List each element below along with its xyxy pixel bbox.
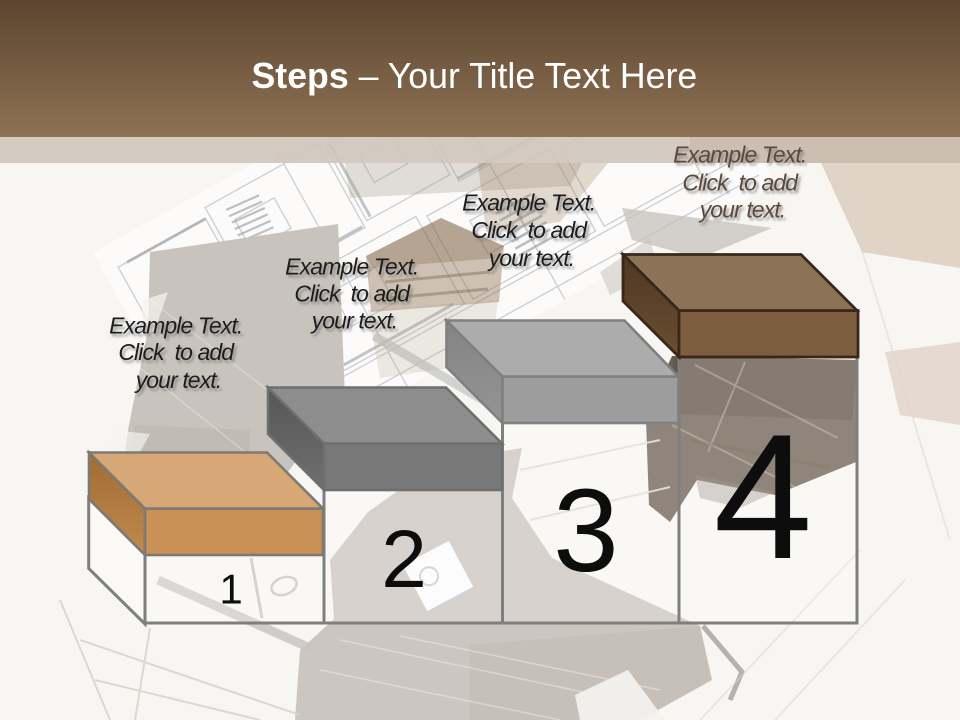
svg-text:3: 3 — [553, 465, 619, 597]
svg-text:4: 4 — [714, 397, 813, 596]
svg-text:1: 1 — [219, 566, 242, 613]
svg-text:Steps – Your Title Text Here: Steps – Your Title Text Here — [252, 56, 698, 96]
svg-text:2: 2 — [381, 514, 427, 605]
